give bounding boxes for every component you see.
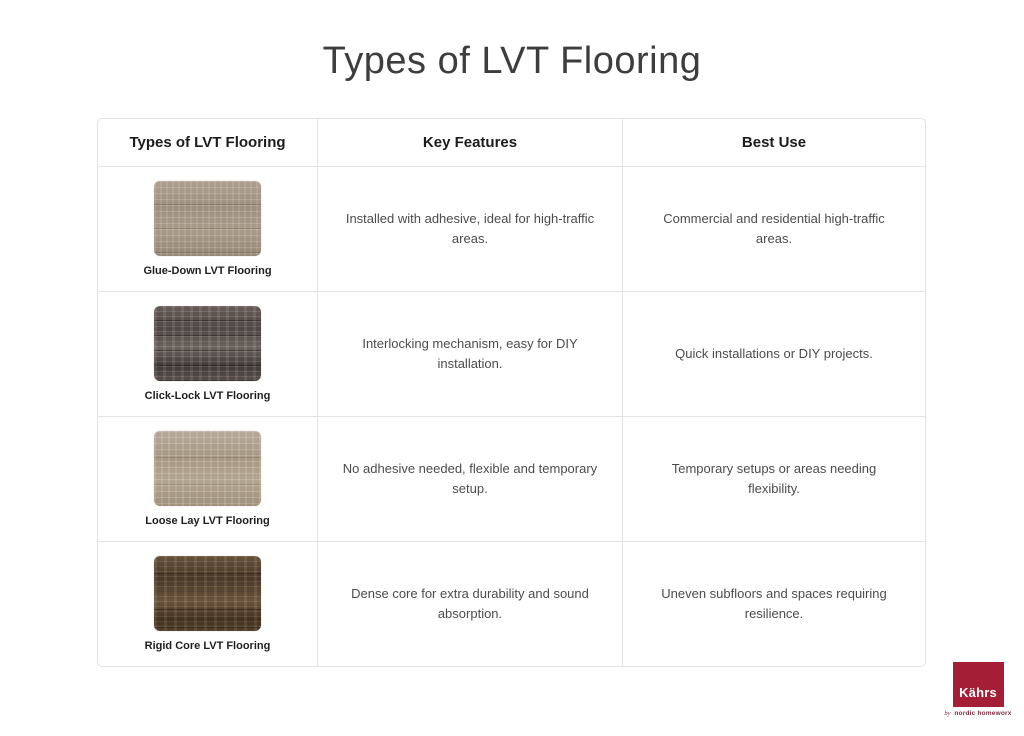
glue-down-wood-swatch-image [154, 181, 261, 256]
kahrs-tagline: by nordic homeworx [942, 710, 1014, 717]
tagline-company-text: nordic homeworx [954, 710, 1011, 717]
kahrs-brand-text: Kährs [959, 685, 997, 700]
best-use-cell: Temporary setups or areas needing flexib… [623, 417, 925, 541]
header-label-best-use: Best Use [742, 134, 806, 151]
features-cell: No adhesive needed, flexible and tempora… [318, 417, 623, 541]
loose-lay-wood-swatch-image [154, 431, 261, 506]
best-use-cell: Quick installations or DIY projects. [623, 292, 925, 416]
lvt-flooring-table: Types of LVT Flooring Key Features Best … [97, 118, 926, 667]
features-cell: Interlocking mechanism, easy for DIY ins… [318, 292, 623, 416]
table-row-loose-lay: Loose Lay LVT Flooring No adhesive neede… [98, 417, 925, 542]
features-cell: Installed with adhesive, ideal for high-… [318, 167, 623, 291]
header-label-features: Key Features [423, 134, 517, 151]
table-row-glue-down: Glue-Down LVT Flooring Installed with ad… [98, 167, 925, 292]
click-lock-wood-swatch-image [154, 306, 261, 381]
type-cell: Click-Lock LVT Flooring [98, 292, 318, 416]
best-use-cell: Commercial and residential high-traffic … [623, 167, 925, 291]
page-title: Types of LVT Flooring [0, 40, 1024, 83]
type-cell: Glue-Down LVT Flooring [98, 167, 318, 291]
type-cell: Loose Lay LVT Flooring [98, 417, 318, 541]
kahrs-logo-square: Kährs [953, 662, 1004, 707]
header-cell-features: Key Features [318, 119, 623, 166]
table-header-row: Types of LVT Flooring Key Features Best … [98, 119, 925, 167]
page: Types of LVT Flooring Types of LVT Floor… [0, 0, 1024, 736]
type-cell: Rigid Core LVT Flooring [98, 542, 318, 666]
type-label: Glue-Down LVT Flooring [143, 265, 271, 277]
features-cell: Dense core for extra durability and soun… [318, 542, 623, 666]
header-cell-types: Types of LVT Flooring [98, 119, 318, 166]
header-cell-best-use: Best Use [623, 119, 925, 166]
type-label: Click-Lock LVT Flooring [145, 390, 271, 402]
type-label: Rigid Core LVT Flooring [145, 640, 271, 652]
table-row-rigid-core: Rigid Core LVT Flooring Dense core for e… [98, 542, 925, 666]
type-label: Loose Lay LVT Flooring [145, 515, 269, 527]
best-use-cell: Uneven subfloors and spaces requiring re… [623, 542, 925, 666]
tagline-by-text: by [944, 710, 950, 717]
kahrs-logo: Kährs by nordic homeworx [942, 662, 1014, 717]
rigid-core-wood-swatch-image [154, 556, 261, 631]
header-label-types: Types of LVT Flooring [129, 134, 285, 151]
table-row-click-lock: Click-Lock LVT Flooring Interlocking mec… [98, 292, 925, 417]
